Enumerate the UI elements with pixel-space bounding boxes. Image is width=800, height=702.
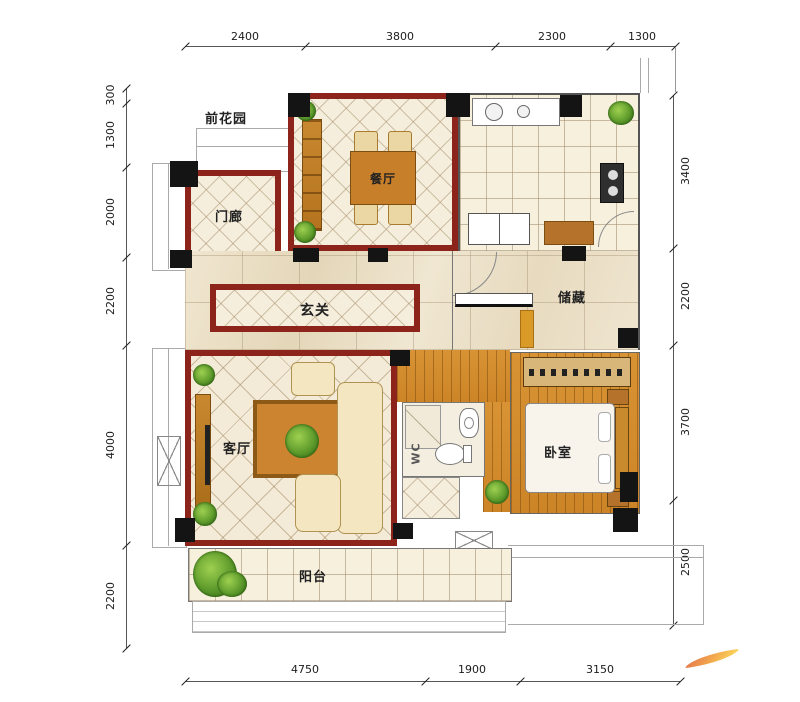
storage-label: 储藏 [558, 287, 586, 306]
sofa-main [337, 382, 383, 534]
back-garden-line [703, 545, 704, 625]
extension-line [675, 47, 676, 92]
wardrobe-rail [529, 369, 627, 376]
room-balcony: 阳台 [188, 548, 512, 602]
dim-left-2: 2000 [104, 182, 118, 242]
window-symbol [157, 436, 181, 486]
foyer-rug: 玄关 [210, 284, 420, 332]
kitchen-door-arc [598, 211, 634, 247]
front-garden-label: 前花园 [205, 108, 247, 127]
dim-right-0: 3400 [679, 141, 693, 201]
burner [608, 170, 618, 180]
wardrobe [523, 357, 631, 387]
burner [608, 186, 618, 196]
porch-window-line [168, 163, 169, 269]
potted-plant [193, 364, 215, 386]
pillow [598, 412, 611, 442]
column [293, 248, 319, 262]
column [390, 350, 410, 366]
kitchen-stove [600, 163, 624, 203]
sofa-armchair [291, 362, 335, 396]
dim-left-4: 4000 [104, 415, 118, 475]
bedroom-label: 卧室 [544, 442, 572, 461]
dining-chair [388, 131, 412, 153]
dining-chair [354, 203, 378, 225]
dim-line-bottom [185, 681, 680, 682]
dining-cabinet [302, 119, 322, 231]
dim-left-1: 1300 [104, 105, 118, 165]
column [446, 93, 470, 117]
porch-label: 门廊 [215, 206, 243, 225]
dim-top-2: 2300 [522, 30, 582, 44]
living-rug [253, 400, 347, 478]
tv-cabinet [195, 394, 211, 514]
potted-plant [485, 480, 509, 504]
column [170, 161, 198, 187]
hall-cabinet [520, 310, 534, 348]
dining-table: 餐厅 [350, 151, 416, 205]
dim-right-1: 2200 [679, 266, 693, 326]
dim-left-3: 2200 [104, 271, 118, 331]
wood-hall [397, 350, 510, 402]
potted-plant [608, 101, 634, 125]
column [620, 472, 638, 502]
back-garden-line [508, 624, 704, 625]
dim-left-5: 2200 [104, 566, 118, 626]
bath-alcove [402, 477, 460, 519]
balcony-plant [217, 571, 247, 597]
room-living: 客厅 [185, 350, 397, 546]
toilet [435, 443, 465, 465]
rug-plant [285, 424, 319, 458]
column [368, 248, 388, 262]
kitchen-fridge [468, 213, 530, 245]
column [170, 250, 192, 268]
floor-plan: 2400 3800 2300 1300 300 1300 2000 2200 4… [0, 0, 800, 702]
potted-plant [294, 221, 316, 243]
back-garden-line [508, 557, 704, 558]
dining-chair [388, 203, 412, 225]
potted-plant [193, 502, 217, 526]
dim-top-0: 2400 [215, 30, 275, 44]
column [562, 246, 586, 261]
column [393, 523, 413, 539]
dim-bottom-0: 4750 [275, 663, 335, 677]
room-wc: WC [402, 402, 485, 477]
dim-right-3: 2500 [679, 532, 693, 592]
roof-line [648, 58, 649, 93]
wc-sink [459, 408, 479, 438]
dim-bottom-1: 1900 [442, 663, 502, 677]
sink-bowl [464, 417, 474, 429]
fridge-divider [499, 214, 500, 244]
living-label: 客厅 [223, 438, 251, 457]
column [618, 328, 638, 348]
back-garden-line [508, 545, 704, 546]
column [288, 93, 310, 117]
balcony-label: 阳台 [299, 566, 327, 585]
column [560, 95, 582, 117]
pillow [598, 454, 611, 484]
dim-top-1: 3800 [370, 30, 430, 44]
garden-steps [192, 601, 506, 633]
kitchen-counter [544, 221, 594, 245]
dining-chair [354, 131, 378, 153]
sink-basin [485, 103, 503, 121]
toilet-tank [463, 445, 472, 463]
dim-line-top [185, 46, 675, 47]
sink-basin [517, 105, 530, 118]
room-dining: 餐厅 [288, 93, 458, 251]
sofa-chaise [295, 474, 341, 532]
kitchen-sink-counter [472, 98, 560, 126]
hall-shelf [455, 293, 533, 307]
room-kitchen [458, 93, 640, 253]
dim-top-3: 1300 [612, 30, 672, 44]
brand-logo-swoosh [685, 649, 740, 669]
bed: 卧室 [525, 403, 615, 493]
tv [205, 425, 210, 485]
dim-line-left [126, 88, 127, 648]
foyer-label: 玄关 [300, 300, 330, 320]
column [175, 518, 195, 542]
roof-line [640, 58, 641, 93]
wc-label: WC [410, 442, 423, 464]
dim-right-2: 3700 [679, 392, 693, 452]
room-porch: 门廊 [185, 170, 281, 262]
column [613, 508, 638, 532]
dim-bottom-2: 3150 [570, 663, 630, 677]
dining-label: 餐厅 [370, 170, 396, 187]
